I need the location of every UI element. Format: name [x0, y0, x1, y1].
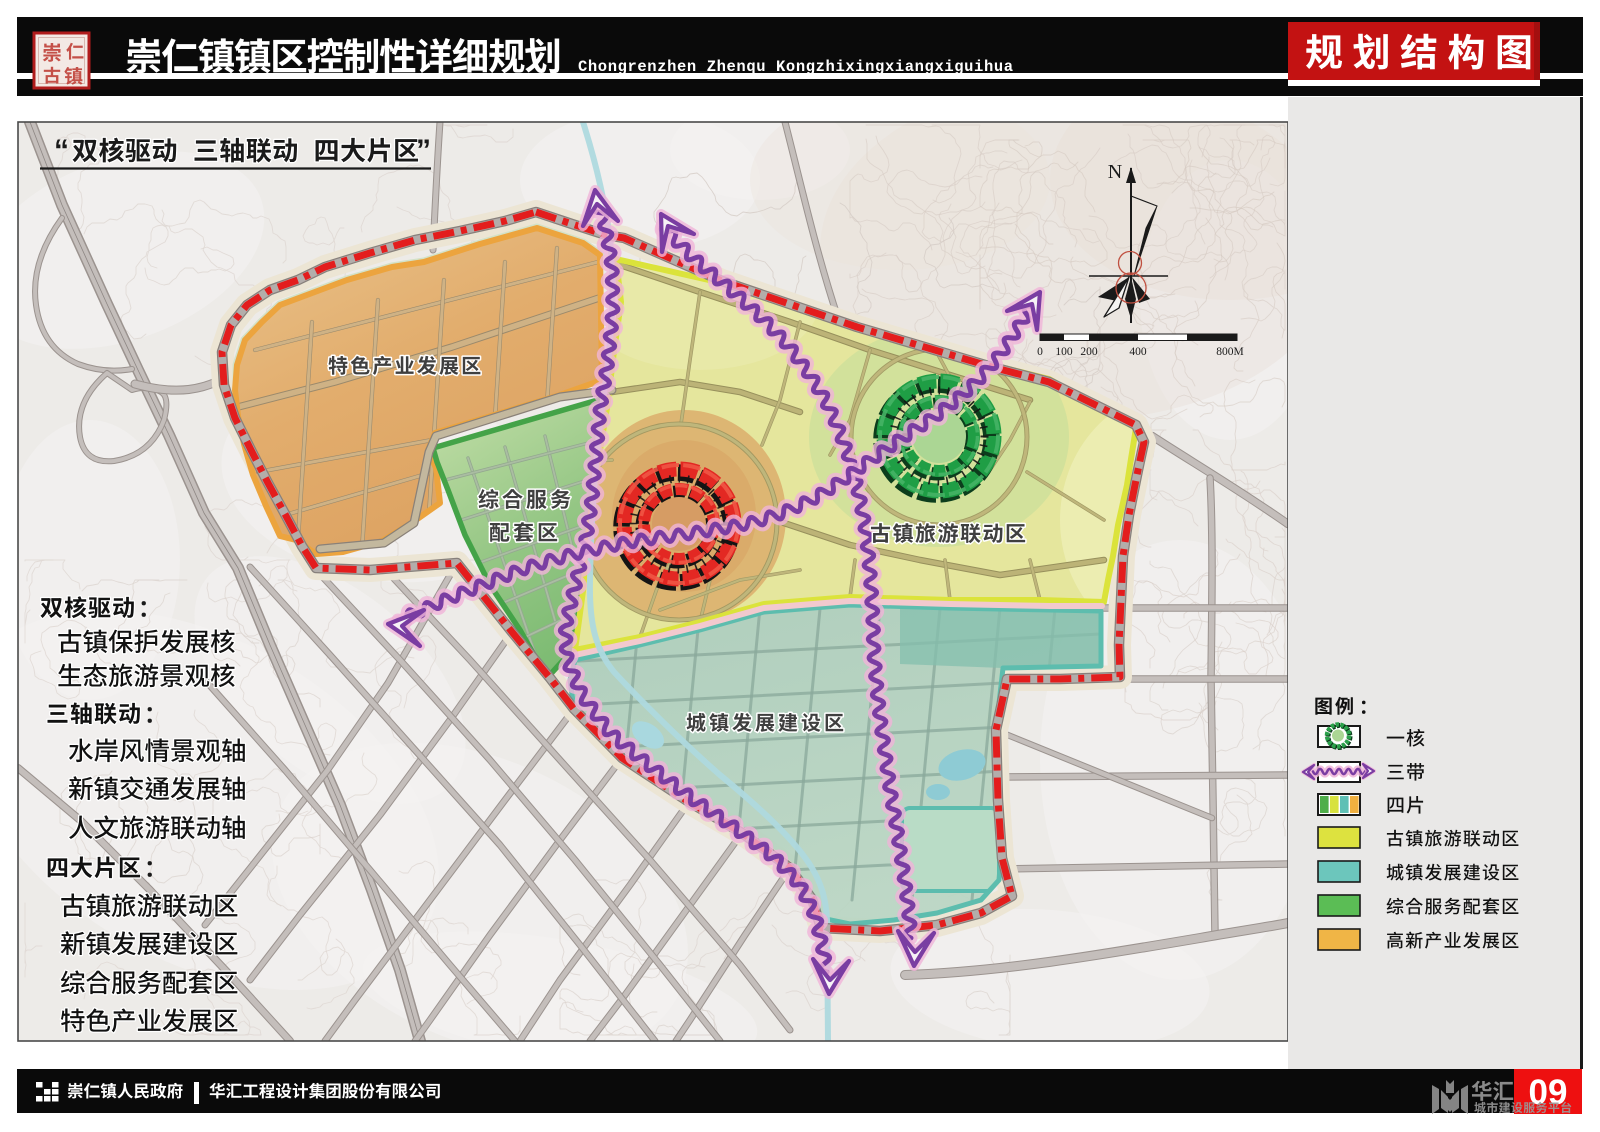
svg-text:：: ：: [138, 595, 161, 621]
svg-text:200: 200: [1080, 346, 1098, 358]
svg-text:Chongrenzhen Zhenqu Kongzhixin: Chongrenzhen Zhenqu Kongzhixingxiangxigu…: [578, 58, 1014, 76]
svg-text:N: N: [1108, 161, 1122, 183]
svg-text:：: ：: [144, 855, 167, 881]
svg-text:0: 0: [1037, 346, 1043, 358]
svg-text:：: ：: [144, 701, 167, 727]
svg-text:800M: 800M: [1216, 346, 1243, 358]
svg-text:400: 400: [1129, 346, 1147, 358]
svg-text:“: “: [54, 134, 69, 167]
svg-text:：: ：: [1359, 697, 1378, 718]
svg-text:100: 100: [1055, 346, 1073, 358]
svg-text:”: ”: [416, 134, 431, 167]
